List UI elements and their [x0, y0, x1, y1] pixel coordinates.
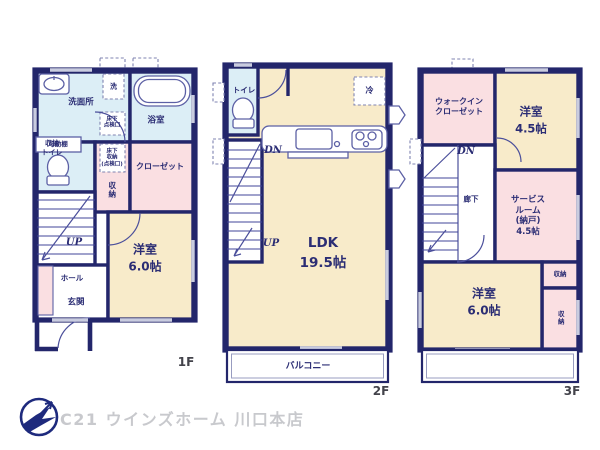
label-walk-in-closet: ウォークイン クローゼット: [435, 97, 483, 117]
label-balcony-2f: バルコニー: [286, 361, 331, 372]
bathtub-icon: [134, 76, 190, 106]
label-refrigerator: 冷: [366, 86, 374, 96]
label-washer: 洗: [110, 83, 117, 92]
label-closet: クローゼット: [136, 162, 184, 172]
label-up-1f: UP: [66, 237, 82, 250]
label-dn-3f: DN: [457, 146, 475, 159]
vent-arrow-icon: [389, 170, 405, 188]
porch-wall-1f: [35, 320, 90, 351]
label-entrance: 玄関: [67, 298, 84, 309]
label-service-room: サービス ルーム (納戸) 4.5帖: [511, 195, 545, 238]
floor-label-3f: 3F: [564, 384, 581, 398]
label-bathroom: 浴室: [147, 116, 164, 127]
label-storage-b: 収納: [557, 311, 564, 326]
window-box-2f: [213, 139, 224, 164]
label-toilet-2f: トイレ: [233, 85, 256, 94]
label-bedroom-45: 洋室 4.5帖: [515, 103, 547, 136]
window-box-3f: [410, 139, 421, 164]
label-corridor: 廊下: [464, 194, 479, 203]
label-underfloor-hatch: 床下 点検口: [104, 117, 121, 130]
floor-plan-sheet: 洗面所 洗 浴室 床下 点検口 可動棚 収納 トイレ 床下 収納 (点検口) 収…: [0, 0, 600, 450]
vent-arrow-icon: [389, 106, 405, 124]
label-ldk: LDK 19.5帖: [300, 233, 347, 274]
label-up-2f: UP: [263, 238, 279, 251]
floor-label-1f: 1F: [178, 355, 195, 369]
label-storage-a: 収納: [554, 270, 567, 278]
label-bedroom-60: 洋室 6.0帖: [467, 286, 500, 321]
floor-plan-1f: [35, 58, 195, 351]
sink-icon: [39, 74, 69, 94]
label-hall: ホール: [61, 273, 84, 282]
label-bedroom-1f: 洋室 6.0帖: [128, 242, 161, 277]
stairwell-2f: [227, 140, 262, 262]
company-logo-text: C21 ウインズホーム 川口本店: [60, 406, 304, 430]
toilet-icon-1f: [47, 155, 69, 185]
label-toilet-1f: 収納 トイレ: [42, 139, 63, 157]
company-logo-icon: [21, 399, 57, 435]
toilet-icon-2f: [233, 98, 255, 128]
balcony-3f: [422, 350, 578, 382]
floor-plan-2f: [213, 65, 405, 382]
room-closet-1f: [130, 142, 193, 212]
window-box-2f: [213, 83, 224, 102]
label-underfloor-storage: 床下 収納 (点検口): [101, 148, 123, 167]
label-storage-1f: 収納: [108, 182, 116, 199]
label-washroom: 洗面所: [68, 98, 94, 109]
label-dn-2f: DN: [264, 145, 282, 158]
shoe-cabinet: [38, 266, 53, 315]
floor-label-2f: 2F: [373, 384, 390, 398]
